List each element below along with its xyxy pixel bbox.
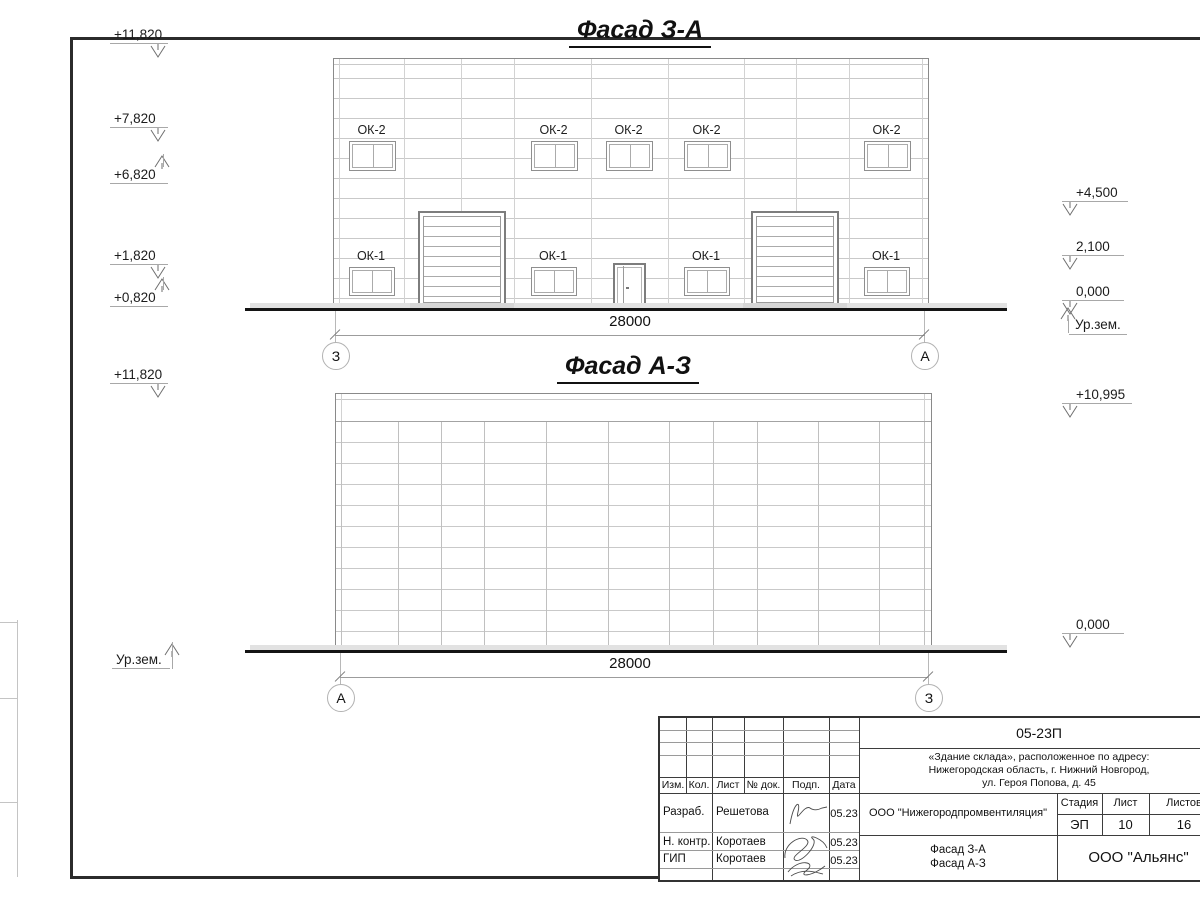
facade2-panel-joint — [546, 422, 547, 651]
tb-name: Коротаев — [716, 836, 782, 848]
tb-col-ndoc: № док. — [744, 779, 783, 791]
facade2-panel-joint — [757, 422, 758, 651]
tb-sheet-label: Лист — [1102, 797, 1149, 809]
left-margin-stamp — [0, 802, 17, 803]
window-label: ОК-2 — [531, 123, 576, 137]
tb-address-line: Нижегородская область, г. Нижний Новгоро… — [859, 764, 1200, 776]
facade2-panel-joint — [669, 422, 670, 651]
level-mark-icon — [1062, 634, 1078, 649]
axis-bubble: А — [327, 684, 355, 712]
elevation-mark: +7,820 — [110, 111, 168, 128]
window-label: ОК-1 — [684, 249, 728, 263]
tb-role: Н. контр. — [663, 836, 712, 848]
axis-extension-line — [928, 653, 929, 686]
dimension-line — [335, 335, 925, 336]
level-mark-icon — [1062, 256, 1078, 271]
level-mark-icon — [154, 277, 170, 292]
elevation-mark: 0,000 — [1062, 617, 1124, 634]
axis-extension-line — [335, 311, 336, 343]
elevation-mark: +10,995 — [1062, 387, 1132, 404]
elevation-mark: +1,820 — [110, 248, 168, 265]
tb-stage-value: ЭП — [1057, 817, 1102, 832]
facade1-elevation: ОК-2 ОК-2 ОК-2 ОК-2 ОК-2 ОК-1 ОК-1 ОК-1 … — [333, 58, 929, 310]
facade2-panel-lines — [336, 422, 931, 651]
title-block: Изм. Кол. Лист № док. Подп. Дата Разраб.… — [658, 716, 1200, 882]
tb-drawing-title: Фасад А-З — [862, 858, 1054, 870]
window-ok2 — [606, 141, 653, 171]
facade2-panel-joint — [924, 422, 925, 651]
facade1-panel-joint — [668, 59, 669, 309]
elevation-mark: +11,820 — [110, 367, 168, 384]
elevation-mark: 0,000 — [1062, 284, 1124, 301]
tb-doc-number: 05-23П — [859, 725, 1200, 741]
window-ok2 — [864, 141, 911, 171]
window-ok1 — [349, 267, 395, 296]
left-margin-stamp — [0, 622, 17, 623]
window-label: ОК-1 — [864, 249, 908, 263]
facade1-panel-joint — [849, 59, 850, 309]
window-label: ОК-1 — [349, 249, 393, 263]
elevation-mark: +0,820 — [110, 290, 168, 307]
level-mark-icon — [150, 384, 166, 399]
tb-sheets-value: 16 — [1149, 817, 1200, 832]
facade2-panel-joint — [441, 422, 442, 651]
window-ok1 — [864, 267, 910, 296]
facade2-panel-joint — [818, 422, 819, 651]
level-mark-icon — [154, 154, 170, 169]
drawing-sheet: Фасад З-А ОК-2 ОК-2 ОК-2 ОК-2 ОК-2 ОК-1 … — [0, 0, 1200, 900]
tb-date: 05.23 — [829, 855, 859, 867]
ground-line — [245, 308, 1007, 311]
tb-name: Коротаев — [716, 853, 782, 865]
tb-col-list: Лист — [712, 779, 744, 791]
sheet-border-left — [70, 37, 73, 878]
facade2-panel-joint — [608, 422, 609, 651]
tb-organization: ООО "Нижегородпромвентиляция" — [862, 807, 1054, 819]
facade1-panel-joint — [591, 59, 592, 309]
dimension-value: 28000 — [550, 313, 710, 330]
facade1-panel-joint — [744, 59, 745, 309]
tb-col-izm: Изм. — [660, 779, 686, 791]
left-margin-stamp — [17, 620, 18, 877]
signature — [781, 830, 831, 880]
axis-bubble: З — [915, 684, 943, 712]
tb-address-line: ул. Героя Попова, д. 45 — [859, 777, 1200, 789]
dimension-value: 28000 — [550, 655, 710, 672]
tb-drawing-title: Фасад З-А — [862, 844, 1054, 856]
axis-extension-line — [924, 311, 925, 343]
window-label: ОК-2 — [684, 123, 729, 137]
window-ok1 — [531, 267, 577, 296]
elevation-mark: +6,820 — [110, 167, 168, 184]
sectional-gate — [751, 211, 839, 308]
tb-role: ГИП — [663, 853, 712, 865]
tb-name: Решетова — [716, 806, 782, 818]
facade2-elevation — [335, 393, 932, 652]
window-label: ОК-2 — [606, 123, 651, 137]
elevation-mark: +4,500 — [1062, 185, 1128, 202]
axis-bubble: З — [322, 342, 350, 370]
axis-bubble: А — [911, 342, 939, 370]
level-mark-icon — [150, 128, 166, 143]
facade1-panel-joint — [339, 59, 340, 309]
facade1-panel-joint — [922, 59, 923, 309]
elevation-mark: +11,820 — [110, 27, 168, 44]
tb-date: 05.23 — [829, 837, 859, 849]
tb-col-kol: Кол. — [686, 779, 712, 791]
facade2-panel-joint — [713, 422, 714, 651]
ground-level-mark: Ур.зем. — [112, 652, 170, 669]
facade2-panel-joint — [341, 422, 342, 651]
level-mark-icon — [1062, 404, 1078, 419]
window-ok1 — [684, 267, 730, 296]
facade2-title: Фасад А-З — [498, 352, 758, 384]
facade1-panel-joint — [404, 59, 405, 309]
facade1-title: Фасад З-А — [510, 16, 770, 48]
level-mark-icon — [1062, 202, 1078, 217]
elevation-mark: 2,100 — [1062, 239, 1124, 256]
tb-role: Разраб. — [663, 806, 712, 818]
left-margin-stamp — [0, 698, 17, 699]
facade1-panel-joint — [514, 59, 515, 309]
facade2-parapet-band — [336, 394, 931, 422]
tb-col-data: Дата — [829, 779, 859, 791]
tb-address-line: «Здание склада», расположенное по адресу… — [859, 751, 1200, 763]
facade2-panel-joint — [879, 422, 880, 651]
level-mark-icon — [150, 44, 166, 59]
window-label: ОК-2 — [349, 123, 394, 137]
tb-sheet-value: 10 — [1102, 817, 1149, 832]
sectional-gate — [418, 211, 506, 308]
facade2-panel-joint — [484, 422, 485, 651]
tb-sheets-label: Листов — [1149, 797, 1200, 809]
signature — [784, 794, 829, 832]
window-ok2 — [531, 141, 578, 171]
axis-extension-line — [340, 653, 341, 686]
tb-company: ООО "Альянс" — [1057, 849, 1200, 866]
ground-line — [245, 650, 1007, 653]
tb-date: 05.23 — [829, 808, 859, 820]
tb-col-podp: Подп. — [783, 779, 829, 791]
facade2-panel-joint — [398, 422, 399, 651]
tb-stage-label: Стадия — [1057, 797, 1102, 809]
window-ok2 — [684, 141, 731, 171]
window-ok2 — [349, 141, 396, 171]
window-label: ОК-2 — [864, 123, 909, 137]
facade1-roof-line — [334, 64, 928, 65]
window-label: ОК-1 — [531, 249, 575, 263]
dimension-line — [340, 677, 928, 678]
